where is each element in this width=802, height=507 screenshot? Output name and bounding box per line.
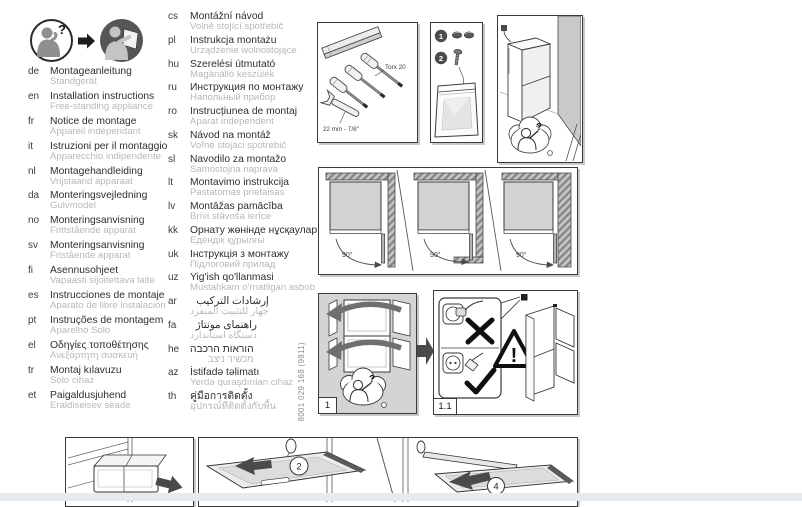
wrench-icon: [321, 90, 362, 121]
language-entry: fa راهنمای مونتاژ دستگاه استاندارد: [168, 320, 316, 344]
language-subtitle: Pastatomas prietaisas: [190, 188, 289, 199]
language-subtitle: دستگاه استاندارد: [190, 331, 257, 342]
clearance-scene-thick-wall: 90°: [502, 173, 571, 268]
language-title: Navodilo za montažo: [190, 154, 286, 165]
page-bottom-band: [0, 493, 802, 501]
language-entry: uz Yig'ish qo'llanmasi Mustahkam o'rnati…: [168, 272, 316, 296]
question-mark: ?: [536, 122, 542, 133]
parts-box: 1 2: [430, 22, 483, 143]
step-2-number: 2: [296, 462, 301, 473]
language-list-column-1: de Montageanleitung Standgerät en Instal…: [28, 66, 166, 414]
language-code: fa: [168, 320, 190, 331]
language-entry: az İstifadə təlimatı Yerdə quraşdırılan …: [168, 367, 316, 391]
language-subtitle: Aparat independent: [190, 117, 297, 128]
step-1-label: 1: [319, 397, 337, 413]
language-code: en: [28, 91, 50, 102]
person-head: [110, 27, 121, 38]
language-entry: fr Notice de montage Appareil indépendan…: [28, 116, 166, 141]
language-subtitle: Напольный прибор: [190, 93, 303, 104]
language-code: sk: [168, 130, 190, 141]
language-code: es: [28, 290, 50, 301]
language-code: sl: [168, 154, 190, 165]
language-code: pl: [168, 35, 190, 46]
door-clearance-box: 90° 90° 90°: [318, 167, 578, 275]
open-fridge-icon: [526, 304, 574, 401]
language-code: tr: [28, 365, 50, 376]
wrench-size-label: 22 mm - 7/8": [323, 126, 359, 133]
language-code: de: [28, 66, 50, 77]
language-subtitle: Eraldiseisev seade: [50, 401, 131, 412]
person-reading-icon: [100, 19, 143, 62]
arrow-right-icon: [78, 33, 95, 49]
language-subtitle: Vapaasti sijoitettava laite: [50, 276, 155, 287]
language-subtitle: Gulvmodel: [50, 201, 147, 212]
language-code: pt: [28, 315, 50, 326]
language-entry: ar إرشادات التركيب جهاز للتثبيت المنفرد: [168, 296, 316, 320]
language-code: lv: [168, 201, 190, 212]
language-entry: lv Montāžas pamācība Brīvi stāvoša ierīc…: [168, 201, 316, 225]
language-subtitle: Frittstående apparat: [50, 226, 144, 237]
language-subtitle: Vrijstaand apparaat: [50, 177, 143, 188]
language-subtitle: Magánálló készülék: [190, 70, 275, 81]
language-title: Paigaldusjuhend: [50, 390, 131, 401]
language-entry: pt Instruções de montagem Aparelho Solo: [28, 315, 166, 340]
language-code: uz: [168, 272, 190, 283]
next-step-arrow-icon: [417, 337, 434, 365]
open-door: [382, 234, 385, 263]
language-entry: cs Montážní návod Volně stojící spotřebi…: [168, 11, 316, 35]
language-code: it: [28, 141, 50, 152]
language-subtitle: Standgerät: [50, 77, 132, 88]
plastic-bag-icon: [435, 83, 478, 137]
person-head: [42, 28, 53, 39]
rail-icon: [322, 27, 382, 59]
language-code: ar: [168, 296, 190, 307]
side-wall: [558, 16, 581, 146]
angle-label: 90°: [430, 251, 441, 259]
fridge-3d-icon: [501, 25, 550, 122]
language-entry: sl Navodilo za montažo Samostojna naprav…: [168, 154, 316, 178]
angle-label: 90°: [516, 251, 527, 259]
step-1-1-box: ! 1.1: [433, 290, 578, 415]
language-code: el: [28, 340, 50, 351]
clearance-scene-wall-right: 90°: [326, 173, 395, 268]
language-code: et: [28, 390, 50, 401]
language-code: sv: [28, 240, 50, 251]
step-4-number: 4: [493, 482, 498, 493]
language-entry: da Monteringsvejledning Gulvmodel: [28, 190, 166, 215]
language-subtitle: อุปกรณ์ที่ติดตั้งกับพื้น: [190, 402, 276, 413]
drawer-icon: [94, 455, 166, 492]
language-entry: et Paigaldusjuhend Eraldiseisev seade: [28, 390, 166, 415]
language-entry: en Installation instructions Free-standi…: [28, 91, 166, 116]
question-mark: ?: [58, 22, 66, 37]
warning-mark: !: [511, 345, 518, 367]
language-code: da: [28, 190, 50, 201]
power-cord: [504, 31, 511, 42]
language-entry: pl Instrukcja montażu Urządzenie wolnost…: [168, 35, 316, 59]
language-entry: it Istruzioni per il montaggio Apparecch…: [28, 141, 166, 166]
language-subtitle: Samostojna naprava: [190, 165, 286, 176]
language-code: cs: [168, 11, 190, 22]
language-title: Інструкція з монтажу: [190, 249, 289, 260]
language-entry: ro Instrucțiunea de montaj Aparat indepe…: [168, 106, 316, 130]
language-title: Montagehandleiding: [50, 166, 143, 177]
person-body: [37, 39, 60, 57]
language-code: az: [168, 367, 190, 378]
angle-label: 90°: [342, 251, 353, 259]
mounting-pin: [286, 439, 296, 453]
language-title: Szerelési útmutató: [190, 59, 275, 70]
language-subtitle: جهاز للتثبيت المنفرد: [190, 307, 269, 318]
scene-divider: [397, 170, 413, 271]
tools-box: Torx 20 22 mm - 7/8": [317, 22, 418, 143]
open-door: [554, 234, 557, 263]
language-subtitle: Едендік құрылғы: [190, 236, 317, 247]
language-entry: es Instrucciones de montaje Aparato de l…: [28, 290, 166, 315]
mounting-pin: [417, 441, 425, 453]
language-code: ro: [168, 106, 190, 117]
step-1-box: ? 1: [318, 293, 417, 414]
language-entry: de Montageanleitung Standgerät: [28, 66, 166, 91]
person-question-bubble-icon: ?: [341, 368, 387, 407]
torx-size-label: Torx 20: [385, 64, 406, 71]
language-entry: lt Montavimo instrukcija Pastatomas prie…: [168, 177, 316, 201]
language-subtitle: Solo cihaz: [50, 376, 122, 387]
document-number: 8001 029 168 (9811): [297, 342, 306, 421]
language-title: הוראות הרכבה: [190, 344, 254, 355]
language-subtitle: Aparato de libre instalación: [50, 301, 166, 312]
language-subtitle: מכשיר ניצב: [190, 355, 254, 366]
manual-logo: ?: [30, 19, 143, 62]
clearance-scene-niche: 90°: [414, 173, 483, 265]
language-code: he: [168, 344, 190, 355]
language-entry: kk Орнату жөнінде нұсқаулар Едендік құры…: [168, 225, 316, 249]
language-entry: uk Інструкція з монтажу Підлоговий прила…: [168, 249, 316, 273]
part-2-number: 2: [439, 54, 443, 63]
language-entry: sv Monteringsanvisning Fristående appara…: [28, 240, 166, 265]
language-subtitle: Voľne stojaci spotrebič: [190, 141, 286, 152]
language-subtitle: Підлоговий прилад: [190, 260, 289, 271]
language-subtitle: Brīvi stāvoša ierīce: [190, 212, 283, 223]
language-subtitle: Volně stojící spotřebič: [190, 22, 283, 33]
language-subtitle: Free-standing appliance: [50, 102, 154, 113]
corner-placement-box: ?: [497, 15, 583, 163]
language-subtitle: Mustahkam o'rnatilgan asbob: [190, 283, 315, 294]
language-entry: ru Инструкция по монтажу Напольный прибо…: [168, 82, 316, 106]
language-code: th: [168, 391, 190, 402]
language-list-column-2: cs Montážní návod Volně stojící spotřebi…: [168, 11, 316, 415]
person-question-bubble-icon: ?: [509, 117, 552, 155]
open-door: [470, 234, 473, 260]
language-code: uk: [168, 249, 190, 260]
language-subtitle: Urządzenie wolnostojące: [190, 46, 297, 57]
language-entry: el Οδηγίες τοποθέτησης Ανεξάρτητη συσκευ…: [28, 340, 166, 365]
language-subtitle: Fristående apparat: [50, 251, 144, 262]
language-subtitle: Appareil indépendant: [50, 127, 141, 138]
scene-divider: [485, 170, 501, 271]
language-subtitle: Yerdə quraşdırılan cihaz: [190, 378, 293, 389]
language-entry: fi Asennusohjeet Vapaasti sijoitettava l…: [28, 265, 166, 290]
language-entry: tr Montaj kılavuzu Solo cihaz: [28, 365, 166, 390]
language-entry: hu Szerelési útmutató Magánálló készülék: [168, 59, 316, 83]
language-subtitle: Ανεξάρτητη συσκευή: [50, 351, 149, 362]
language-subtitle: Aparelho Solo: [50, 326, 163, 337]
language-code: fr: [28, 116, 50, 127]
part-1-number: 1: [439, 32, 443, 41]
language-code: ru: [168, 82, 190, 93]
language-entry: nl Montagehandleiding Vrijstaand apparaa…: [28, 166, 166, 191]
cover-caps-icon: [452, 32, 473, 38]
question-mark: ?: [369, 374, 375, 385]
person-question-icon: ?: [30, 19, 73, 62]
language-code: hu: [168, 59, 190, 70]
language-code: lt: [168, 177, 190, 188]
language-code: kk: [168, 225, 190, 236]
step-1-1-label: 1.1: [434, 398, 457, 414]
language-code: nl: [28, 166, 50, 177]
screw-icon: [452, 49, 462, 65]
shelf-rail: [423, 452, 517, 470]
language-entry: th คู่มือการติดตั้ง อุปกรณ์ที่ติดตั้งกับ…: [168, 391, 316, 415]
plug-detail-icon: [521, 294, 528, 301]
language-code: no: [28, 215, 50, 226]
language-subtitle: Apparecchio indipendente: [50, 152, 167, 163]
language-entry: no Monteringsanvisning Frittstående appa…: [28, 215, 166, 240]
language-entry: he הוראות הרכבה מכשיר ניצב: [168, 344, 316, 368]
language-code: fi: [28, 265, 50, 276]
language-entry: sk Návod na montáž Voľne stojaci spotreb…: [168, 130, 316, 154]
